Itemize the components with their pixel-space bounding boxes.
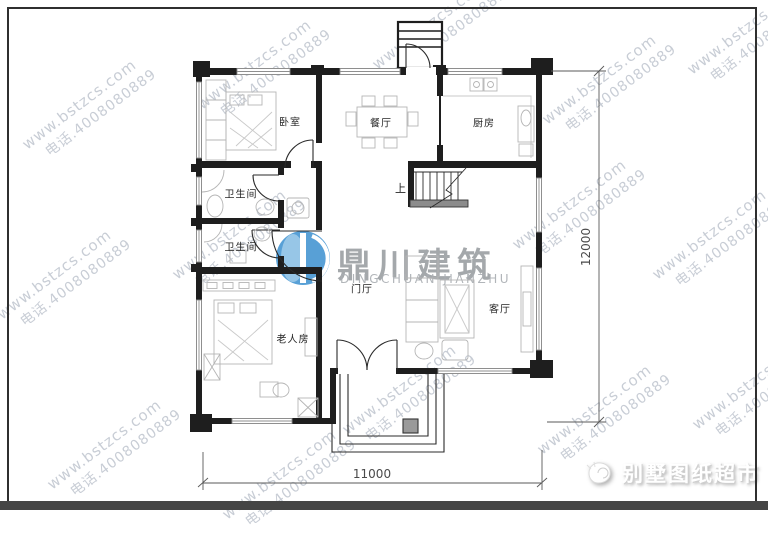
brand-badge: 别墅图纸超市 [583, 458, 760, 488]
room-label-bedroom: 卧室 [279, 114, 301, 129]
room-label-bathroom1: 卫生间 [225, 186, 258, 201]
room-label-dining: 餐厅 [370, 115, 392, 130]
room-labels: 卧室 餐厅 厨房 卫生间 卫生间 老人房 门厅 客厅 上 11000 12000 [0, 0, 768, 510]
dimension-width-label: 11000 [353, 467, 391, 481]
room-label-kitchen: 厨房 [473, 115, 495, 130]
dimension-depth-label: 12000 [579, 228, 593, 266]
room-label-elderly-room: 老人房 [277, 331, 310, 346]
room-label-bathroom2: 卫生间 [225, 239, 258, 254]
brand-name: 别墅图纸超市 [622, 458, 760, 488]
brand-snail-icon [583, 459, 617, 487]
bottom-bar [0, 501, 768, 510]
room-label-foyer: 门厅 [351, 281, 373, 296]
room-label-living-room: 客厅 [489, 301, 511, 316]
stairs-up-label: 上 [395, 180, 407, 196]
